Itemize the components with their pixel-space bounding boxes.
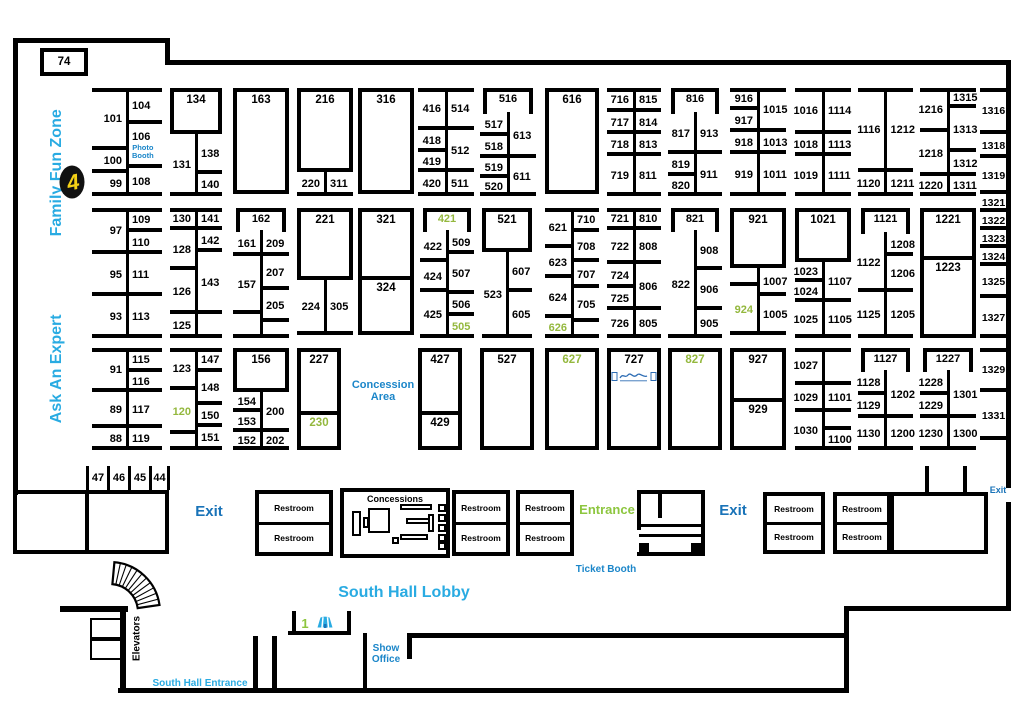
booth-1122: 1122 <box>858 234 886 292</box>
wall <box>668 192 722 196</box>
booth-column: 123120147148150151 <box>170 348 222 450</box>
concessions-furniture <box>438 514 446 522</box>
booth-416: 416 <box>418 88 446 130</box>
wall <box>639 543 649 553</box>
restroom: Restroom <box>837 496 887 525</box>
floor-plan: 10110099104106Photo Booth108131138140220… <box>0 0 1024 707</box>
booth-207: 207 <box>261 256 289 290</box>
booth-624: 624 <box>545 278 572 318</box>
text-exit-middle: Exit <box>708 503 758 520</box>
booth-221: 221 <box>301 212 349 276</box>
wall <box>297 331 353 335</box>
booth-1021: 1021 <box>799 212 847 258</box>
text-south-hall-entrance: South Hall Entrance <box>142 678 258 689</box>
concessions-furniture <box>438 504 446 512</box>
booth-1107: 1107 <box>823 262 851 302</box>
booth-box-521: 521 <box>482 208 532 252</box>
wall <box>165 60 1011 65</box>
wall <box>13 38 18 495</box>
booth-1313: 1313 <box>948 108 976 152</box>
booth-column: 523607605 <box>482 252 532 338</box>
booth-131: 131 <box>170 134 196 196</box>
booth-514: 514 <box>446 88 474 130</box>
wall <box>607 334 661 338</box>
booth-111: 111 <box>127 254 162 296</box>
wall <box>407 633 847 638</box>
concessions-furniture <box>363 517 369 528</box>
booth-1212: 1212 <box>886 88 914 172</box>
booth-516: 516 <box>483 88 533 114</box>
wall <box>963 466 967 494</box>
booth-1114: 1114 <box>823 88 851 134</box>
booth-120: 120 <box>170 390 196 434</box>
concessions-furniture <box>392 537 399 544</box>
booth-column: 122712281229123013011300 <box>920 348 976 450</box>
wall <box>545 334 599 338</box>
restroom-block: RestroomRestroom <box>516 490 574 556</box>
room-space <box>17 494 165 550</box>
booth-200: 200 <box>261 392 289 432</box>
booth-1221: 1221 <box>924 212 972 256</box>
booth-138: 138 <box>196 134 222 174</box>
wall <box>795 192 851 196</box>
booth-512: 512 <box>446 130 474 172</box>
booth-column: 721722724725726810808806805 <box>607 208 661 338</box>
structure-box <box>13 490 169 554</box>
booth-box-321: 321324 <box>358 208 414 335</box>
booth-908: 908 <box>695 232 722 270</box>
booth-column: 1216121812201315131313121311 <box>920 88 976 196</box>
restroom: Restroom <box>259 494 329 525</box>
concessions-furniture <box>400 504 432 510</box>
wall <box>480 192 536 196</box>
booth-911: 911 <box>695 154 722 196</box>
booth-1030: 1030 <box>795 412 823 450</box>
wall <box>639 524 703 527</box>
text-exit-left: Exit <box>184 504 234 521</box>
booth-1206: 1206 <box>886 256 914 292</box>
booth-163: 163 <box>237 92 285 190</box>
booth-row-small: 47464544 <box>86 466 170 490</box>
booth-719: 719 <box>607 156 634 196</box>
concessions-label: Concessions <box>344 494 446 504</box>
booth-816: 816 <box>671 88 719 114</box>
booth-1331: 1331 <box>980 392 1007 440</box>
booth-1005: 1005 <box>758 296 786 335</box>
booth-230: 230 <box>301 411 337 446</box>
booth-44: 44 <box>149 466 170 490</box>
booth-column: 821822908906905 <box>668 208 722 338</box>
wall <box>92 334 162 338</box>
booth-117: 117 <box>127 392 162 428</box>
booth-227: 227 <box>301 352 337 411</box>
booth-143: 143 <box>196 252 222 314</box>
booth-column: 916917918919101510131011 <box>730 88 786 196</box>
booth-1319: 1319 <box>980 158 1007 194</box>
concessions-furniture <box>352 511 361 536</box>
booth-column: 13291331 <box>980 348 1007 440</box>
booth-1216: 1216 <box>920 88 948 132</box>
booth-box-163: 163 <box>233 88 289 194</box>
booth-523: 523 <box>482 252 507 338</box>
booth-1019: 1019 <box>795 156 823 196</box>
booth-507: 507 <box>447 254 474 294</box>
wall <box>233 446 289 450</box>
wall <box>92 192 162 196</box>
booth-89: 89 <box>92 392 127 428</box>
booth-157: 157 <box>233 256 261 314</box>
wall <box>233 334 289 338</box>
restroom: Restroom <box>767 496 821 525</box>
booth-421: 421 <box>423 208 471 232</box>
family-fun-zone-logo: 4 <box>59 165 85 199</box>
booth-316: 316 <box>362 92 410 190</box>
wall <box>1006 502 1011 610</box>
booth-box-1221: 12211223 <box>920 208 976 338</box>
booth-616: 616 <box>549 92 595 190</box>
booth-1116: 1116 <box>858 88 886 172</box>
restroom: Restroom <box>456 525 506 553</box>
stairs <box>104 556 178 614</box>
wall <box>844 606 849 692</box>
wall <box>925 466 929 494</box>
booth-box-74: 74 <box>40 48 88 76</box>
booth-column: 112111221125120812061205 <box>858 208 913 338</box>
booth-box-827: 827 <box>668 348 722 450</box>
booth-607: 607 <box>507 252 532 292</box>
booth-123: 123 <box>170 348 196 390</box>
booth-906: 906 <box>695 270 722 310</box>
booth-913: 913 <box>695 114 722 154</box>
booth-1111: 1111 <box>823 156 851 196</box>
booth-box-156: 156 <box>233 348 289 392</box>
booth-324: 324 <box>362 276 410 331</box>
booth-column: 131138140 <box>170 134 222 196</box>
booth-321: 321 <box>362 212 410 276</box>
wall <box>844 606 1011 611</box>
booth-921: 921 <box>734 212 782 264</box>
wall <box>980 436 1007 440</box>
booth-91: 91 <box>92 348 127 392</box>
booth-927: 927 <box>734 352 782 398</box>
booth-column: 220311 <box>297 172 353 196</box>
wall <box>795 446 851 450</box>
booth-1205: 1205 <box>886 292 914 338</box>
booth-821: 821 <box>671 208 719 232</box>
concessions-furniture <box>438 534 446 542</box>
booth-919: 919 <box>730 154 758 196</box>
wall <box>823 408 851 412</box>
restroom: Restroom <box>456 494 506 525</box>
booth-425: 425 <box>420 292 447 338</box>
booth-box-627: 627 <box>545 348 599 450</box>
wall <box>92 446 162 450</box>
wall <box>572 318 599 322</box>
booth-column: 10231024102511071105 <box>795 262 851 338</box>
booth-1223: 1223 <box>924 256 972 334</box>
restroom: Restroom <box>837 525 887 551</box>
concessions-furniture <box>368 508 390 533</box>
text-entrance: Entrance <box>572 503 642 517</box>
booth-box-527: 527 <box>480 348 534 450</box>
room-space <box>894 496 984 550</box>
booth-605: 605 <box>507 292 532 338</box>
booth-134: 134 <box>174 92 218 130</box>
booth-column: 92410071005 <box>730 268 786 335</box>
booth-827: 827 <box>672 352 718 446</box>
booth-1025: 1025 <box>795 302 823 338</box>
wall <box>858 192 913 196</box>
booth-column: 918988115116117119 <box>92 348 162 450</box>
booth-box-216: 216 <box>297 88 353 172</box>
booth-527: 527 <box>484 352 530 446</box>
booth-box-616: 616 <box>545 88 599 194</box>
booth-162: 162 <box>236 208 286 232</box>
booth-box-316: 316 <box>358 88 414 194</box>
wall <box>170 446 222 450</box>
booth-column: 979593109110111113 <box>92 208 162 338</box>
booth-1327: 1327 <box>980 298 1007 338</box>
text-show-office: Show Office <box>364 643 408 665</box>
wall <box>639 534 703 537</box>
wall <box>658 490 662 518</box>
wall <box>980 334 1007 338</box>
booth-95: 95 <box>92 254 127 296</box>
wall <box>607 192 661 196</box>
restroom-block: RestroomRestroom <box>255 490 333 556</box>
booth-box-727: 727 <box>607 348 661 450</box>
booth-1016: 1016 <box>795 88 823 134</box>
awning-icon <box>316 615 334 630</box>
booth-74: 74 <box>44 52 84 72</box>
wall <box>795 334 851 338</box>
booth-1218: 1218 <box>920 132 948 176</box>
booth-727-logo <box>611 370 657 383</box>
booth-1316: 1316 <box>980 88 1007 134</box>
booth-1015: 1015 <box>758 88 786 132</box>
booth-156: 156 <box>237 352 285 388</box>
booth-column: 130128126125141142143 <box>170 208 222 338</box>
restroom: Restroom <box>259 525 329 553</box>
booth-727: 727 <box>611 352 657 446</box>
wall <box>482 334 532 338</box>
booth-box-1021: 1021 <box>795 208 851 262</box>
booth-column: 421422424425509507506505 <box>420 208 474 338</box>
booth-45: 45 <box>128 466 149 490</box>
booth-column: 10110099104106Photo Booth108 <box>92 88 162 196</box>
elevator-cab <box>90 618 124 639</box>
booth-column: 416418419420514512511 <box>418 88 474 196</box>
booth-427: 427 <box>422 352 458 411</box>
booth-705: 705 <box>572 288 599 322</box>
wall <box>701 490 705 556</box>
booth-97: 97 <box>92 208 127 254</box>
text-south-hall-lobby: South Hall Lobby <box>338 584 470 602</box>
text-concession-area: Concession Area <box>348 379 418 403</box>
booth-column: 1116112012121211 <box>858 88 913 196</box>
booth-column: 816817819820913911 <box>668 88 722 196</box>
wall <box>920 446 976 450</box>
concessions-furniture <box>400 534 428 540</box>
booth-806: 806 <box>634 264 661 310</box>
wall <box>420 334 474 338</box>
wall <box>858 446 913 450</box>
booth-808: 808 <box>634 230 661 264</box>
concessions-furniture <box>428 514 434 532</box>
booth-1121: 1121 <box>861 208 910 234</box>
booth-128: 128 <box>170 230 196 270</box>
booth-box-427: 427429 <box>418 348 462 450</box>
booth-126: 126 <box>170 270 196 314</box>
wall <box>730 331 786 335</box>
wall <box>13 38 170 43</box>
restroom: Restroom <box>520 525 570 553</box>
booth-1125: 1125 <box>858 292 886 338</box>
booth-305: 305 <box>325 280 353 335</box>
text-ticket-booth: Ticket Booth <box>570 564 642 575</box>
text-exit-right: Exit <box>984 486 1012 496</box>
booth-106: 106Photo Booth <box>127 124 162 168</box>
restroom-block: RestroomRestroom <box>833 492 891 554</box>
wall <box>297 192 353 196</box>
booth-104: 104 <box>127 88 162 124</box>
booth-column: 224305 <box>297 280 353 335</box>
booth-113: 113 <box>127 296 162 338</box>
booth-101: 101 <box>92 88 127 150</box>
wall <box>691 543 701 553</box>
booth-1127: 1127 <box>861 348 910 372</box>
concessions-block: Concessions <box>340 488 450 558</box>
booth-column: 112711281129113012021200 <box>858 348 913 450</box>
wall <box>196 310 222 314</box>
booth-613: 613 <box>508 114 536 158</box>
wall <box>730 192 786 196</box>
booth-429: 429 <box>422 411 458 446</box>
booth-box-227: 227230 <box>297 348 341 450</box>
booth-box-927: 927929 <box>730 348 786 450</box>
text-booth-1: 1 <box>298 617 312 631</box>
booth-621: 621 <box>545 208 572 248</box>
booth-column: 716717718719815814813811 <box>607 88 661 196</box>
wall <box>418 192 474 196</box>
booth-box-221: 221 <box>297 208 353 280</box>
photo-booth-label: Photo Booth <box>132 144 154 160</box>
wall <box>288 631 351 635</box>
booth-1301: 1301 <box>948 372 976 418</box>
booth-1105: 1105 <box>823 302 851 338</box>
wall <box>233 310 261 314</box>
booth-93: 93 <box>92 296 127 338</box>
booth-1329: 1329 <box>980 348 1007 392</box>
booth-1227: 1227 <box>923 348 973 372</box>
restroom-block: RestroomRestroom <box>452 490 510 556</box>
booth-1202: 1202 <box>886 372 914 418</box>
wall <box>920 192 976 196</box>
booth-929: 929 <box>734 398 782 446</box>
wall <box>261 318 289 322</box>
wall <box>637 490 705 494</box>
wall <box>858 334 913 338</box>
wall <box>668 334 722 338</box>
wall <box>170 334 222 338</box>
structure-box <box>890 492 988 554</box>
booth-521: 521 <box>486 212 528 248</box>
booth-column: 154153152200202 <box>233 392 289 450</box>
booth-column: 101610181019111411131111 <box>795 88 851 196</box>
wall <box>272 636 277 692</box>
booth-box-921: 921 <box>730 208 786 268</box>
booth-811: 811 <box>634 156 661 196</box>
booth-47: 47 <box>86 466 107 490</box>
booth-column: 516517518519520613611 <box>480 88 536 196</box>
restroom: Restroom <box>767 525 821 551</box>
concessions-furniture <box>406 518 430 524</box>
concessions-furniture <box>438 524 446 532</box>
booth-627: 627 <box>549 352 595 446</box>
booth-817: 817 <box>668 114 695 154</box>
booth-722: 722 <box>607 230 634 264</box>
booth-column: 131613181319132113221323132413251327 <box>980 88 1007 338</box>
concessions-furniture <box>438 542 446 550</box>
booth-224: 224 <box>297 280 325 335</box>
booth-column: 162161157209207205 <box>233 208 289 338</box>
booth-1027: 1027 <box>795 348 823 385</box>
wall <box>170 430 196 434</box>
booth-46: 46 <box>107 466 128 490</box>
booth-611: 611 <box>508 158 536 196</box>
booth-box-134: 134 <box>170 88 222 134</box>
booth-924: 924 <box>730 286 758 335</box>
booth-216: 216 <box>301 92 349 168</box>
restroom-block: RestroomRestroom <box>763 492 825 554</box>
booth-column: 621623624626710708707705 <box>545 208 599 338</box>
booth-1011: 1011 <box>758 154 786 196</box>
booth-column: 10271029103011011100 <box>795 348 851 450</box>
wall <box>85 494 89 550</box>
booth-822: 822 <box>668 232 695 338</box>
text-ask-an-expert: Ask An Expert <box>48 294 66 444</box>
wall <box>170 192 222 196</box>
elevator-cab <box>90 639 124 660</box>
restroom: Restroom <box>520 494 570 525</box>
